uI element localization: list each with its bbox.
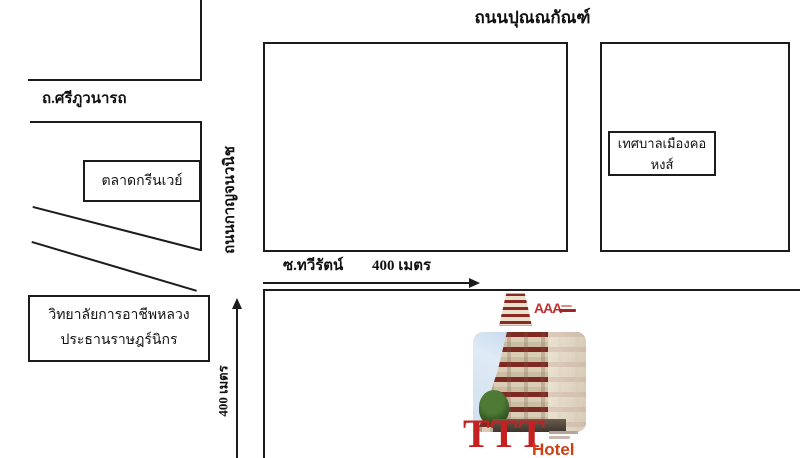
hotel-logo-aaa-text: AAA bbox=[534, 300, 561, 316]
soi-arrow-line bbox=[263, 282, 471, 284]
bottom-block-left-line bbox=[263, 289, 265, 458]
road-label-punnakan: ถนนปุณณกัณฑ์ bbox=[440, 4, 625, 31]
municipality-label: เทศบาลเมืองคอหงส์ bbox=[610, 133, 714, 175]
diagonal-road-line-1 bbox=[33, 206, 201, 251]
map-canvas: ถนนปุณณกัณฑ์ ถ.ศรีภูวนารถ ตลาดกรีนเวย์ ว… bbox=[0, 0, 800, 458]
municipality-box: เทศบาลเมืองคอหงส์ bbox=[608, 131, 716, 176]
brand-caption-line-1 bbox=[549, 431, 578, 434]
hotel-logo-thumbnail-icon bbox=[499, 293, 532, 326]
brand-caption-line-2 bbox=[549, 436, 570, 439]
block-topleft-right-line bbox=[200, 0, 202, 81]
diagonal-road-line-2 bbox=[31, 241, 196, 292]
bottom-block-top-line bbox=[263, 289, 800, 291]
market-label: ตลาดกรีนเวย์ bbox=[101, 170, 182, 192]
hotel-brand-word: Hotel bbox=[532, 440, 575, 458]
block-midleft-top-line bbox=[30, 121, 202, 123]
arrow-up-icon bbox=[232, 298, 242, 309]
road-label-sriphuwanat: ถ.ศรีภูวนารถ bbox=[42, 86, 127, 110]
road-label-soi-thawirat: ซ.ทวีรัตน์ bbox=[283, 253, 343, 277]
college-label-line1: วิทยาลัยการอาชีพหลวง bbox=[48, 304, 189, 329]
market-box: ตลาดกรีนเวย์ bbox=[83, 160, 201, 202]
block-topleft-bottom-line bbox=[28, 79, 202, 81]
hotel-building-wall-graphic bbox=[548, 332, 586, 432]
road-label-kanchanavanich: ถนนกาญจนวนิช bbox=[217, 146, 241, 254]
south-distance-label: 400 เมตร bbox=[213, 365, 234, 416]
logo-caption-line-1 bbox=[561, 305, 572, 307]
college-box: วิทยาลัยการอาชีพหลวง ประธานราษฎร์นิกร bbox=[28, 295, 210, 362]
college-label-line2: ประธานราษฎร์นิกร bbox=[61, 329, 178, 354]
arrow-right-icon bbox=[469, 278, 480, 288]
logo-caption-line-2 bbox=[559, 309, 576, 312]
distance-arrow-line bbox=[236, 307, 238, 458]
soi-distance-label: 400 เมตร bbox=[372, 253, 431, 277]
central-block bbox=[263, 42, 568, 252]
